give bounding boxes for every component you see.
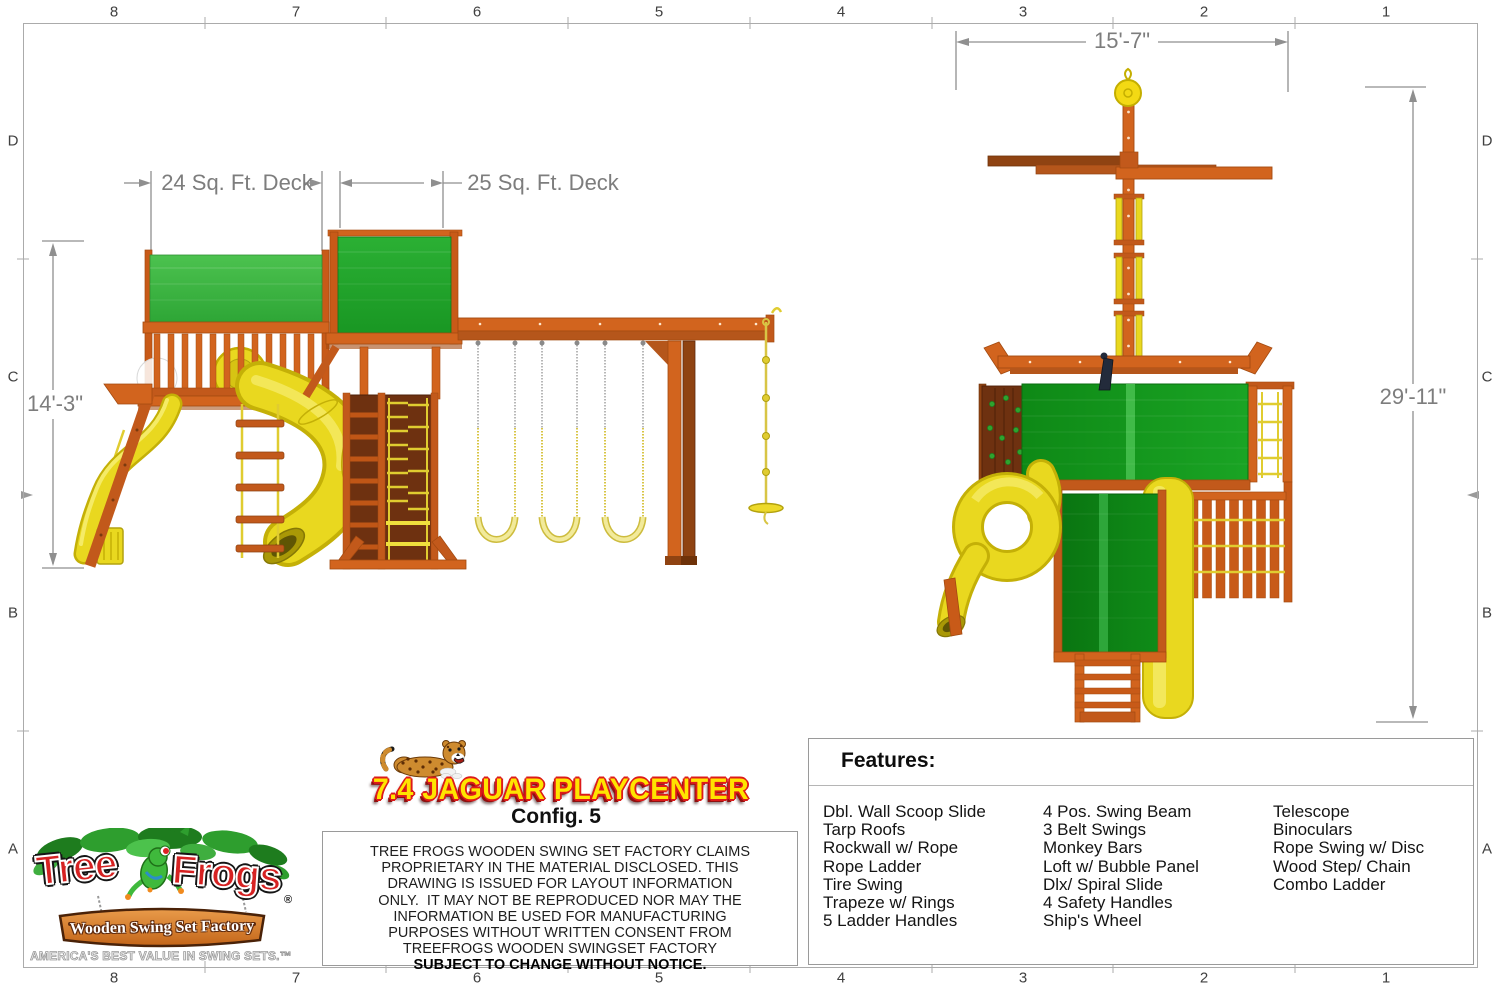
feature-item: Combo Ladder xyxy=(1273,876,1424,894)
ruler-top-5: 5 xyxy=(655,4,663,21)
ruler-right-c: C xyxy=(1482,369,1493,386)
features-column-1: Dbl. Wall Scoop Slide Tarp Roofs Rockwal… xyxy=(823,803,986,930)
ruler-bottom-1: 1 xyxy=(1382,970,1390,987)
features-column-2: 4 Pos. Swing Beam 3 Belt Swings Monkey B… xyxy=(1043,803,1199,930)
feature-item: 3 Belt Swings xyxy=(1043,821,1199,839)
feature-item: Telescope xyxy=(1273,803,1424,821)
feature-item: 5 Ladder Handles xyxy=(823,912,986,930)
feature-item: Tarp Roofs xyxy=(823,821,986,839)
feature-item: Monkey Bars xyxy=(1043,839,1199,857)
disclaimer-notice: SUBJECT TO CHANGE WITHOUT NOTICE. xyxy=(323,957,797,973)
dim-deck1-label: 24 Sq. Ft. Deck xyxy=(161,170,313,196)
ruler-right-d: D xyxy=(1482,133,1493,150)
feature-item: Dbl. Wall Scoop Slide xyxy=(823,803,986,821)
disclaimer-line: ONLY. IT MAY NOT BE REPRODUCED NOR MAY T… xyxy=(323,893,797,909)
dim-width-end-label: 15'-7" xyxy=(1094,28,1150,54)
disclaimer-line: INFORMATION BE USED FOR MANUFACTURING xyxy=(323,909,797,925)
ruler-bottom-4: 4 xyxy=(837,970,845,987)
feature-item: Rockwall w/ Rope xyxy=(823,839,986,857)
ruler-top-3: 3 xyxy=(1019,4,1027,21)
disclaimer-line: TREE FROGS WOODEN SWING SET FACTORY CLAI… xyxy=(323,844,797,860)
dim-height-end-label: 29'-11" xyxy=(1377,384,1450,410)
config-label: Config. 5 xyxy=(511,805,601,829)
ruler-right-b: B xyxy=(1482,605,1492,622)
ruler-left-b: B xyxy=(8,605,18,622)
features-column-3: Telescope Binoculars Rope Swing w/ Disc … xyxy=(1273,803,1424,894)
disclaimer-line: PROPRIETARY IN THE MATERIAL DISCLOSED. T… xyxy=(323,860,797,876)
disclaimer-line: PURPOSES WITHOUT WRITTEN CONSENT FROM xyxy=(323,925,797,941)
ruler-top-7: 7 xyxy=(292,4,300,21)
feature-item: Dlx/ Spiral Slide xyxy=(1043,876,1199,894)
features-divider xyxy=(809,785,1473,786)
drawing-sheet: 8 7 6 5 4 3 2 1 8 7 6 5 4 3 2 1 D C B A … xyxy=(0,0,1500,990)
dim-height-side-label: 14'-3" xyxy=(24,391,86,417)
ruler-right-a: A xyxy=(1482,841,1492,858)
feature-item: 4 Pos. Swing Beam xyxy=(1043,803,1199,821)
feature-item: Rope Ladder xyxy=(823,858,986,876)
ruler-left-a: A xyxy=(8,841,18,858)
ruler-bottom-8: 8 xyxy=(110,970,118,987)
feature-item: Tire Swing xyxy=(823,876,986,894)
disclaimer-line: TREEFROGS WOODEN SWINGSET FACTORY xyxy=(323,941,797,957)
ruler-left-d: D xyxy=(8,133,19,150)
features-heading: Features: xyxy=(841,749,936,773)
logo-tagline: AMERICA'S BEST VALUE IN SWING SETS.™ xyxy=(30,949,292,963)
feature-item: Rope Swing w/ Disc xyxy=(1273,839,1424,857)
logo-word-frogs: Frogs xyxy=(170,846,282,900)
ruler-bottom-2: 2 xyxy=(1200,970,1208,987)
dim-deck2-label: 25 Sq. Ft. Deck xyxy=(467,170,619,196)
ruler-bottom-3: 3 xyxy=(1019,970,1027,987)
logo-word-tree: Tree xyxy=(34,840,119,895)
ruler-top-2: 2 xyxy=(1200,4,1208,21)
ruler-bottom-7: 7 xyxy=(292,970,300,987)
registered-mark: ® xyxy=(284,894,292,906)
ruler-left-c: C xyxy=(8,369,19,386)
treefrogs-logo: Tree Frogs ® Wooden Swing Set Factory AM… xyxy=(28,828,296,966)
product-title: 7.4 JAGUAR PLAYCENTER xyxy=(373,773,749,807)
feature-item: Binoculars xyxy=(1273,821,1424,839)
feature-item: Loft w/ Bubble Panel xyxy=(1043,858,1199,876)
disclaimer-box: TREE FROGS WOODEN SWING SET FACTORY CLAI… xyxy=(322,831,798,966)
feature-item: Wood Step/ Chain xyxy=(1273,858,1424,876)
features-box: Features: Dbl. Wall Scoop Slide Tarp Roo… xyxy=(808,738,1474,965)
ruler-top-1: 1 xyxy=(1382,4,1390,21)
ruler-top-6: 6 xyxy=(473,4,481,21)
ruler-top-4: 4 xyxy=(837,4,845,21)
feature-item: Ship's Wheel xyxy=(1043,912,1199,930)
feature-item: Trapeze w/ Rings xyxy=(823,894,986,912)
feature-item: 4 Safety Handles xyxy=(1043,894,1199,912)
disclaimer-line: DRAWING IS ISSUED FOR LAYOUT INFORMATION xyxy=(323,876,797,892)
logo-sign-text: Wooden Swing Set Factory xyxy=(70,917,255,938)
ruler-top-8: 8 xyxy=(110,4,118,21)
